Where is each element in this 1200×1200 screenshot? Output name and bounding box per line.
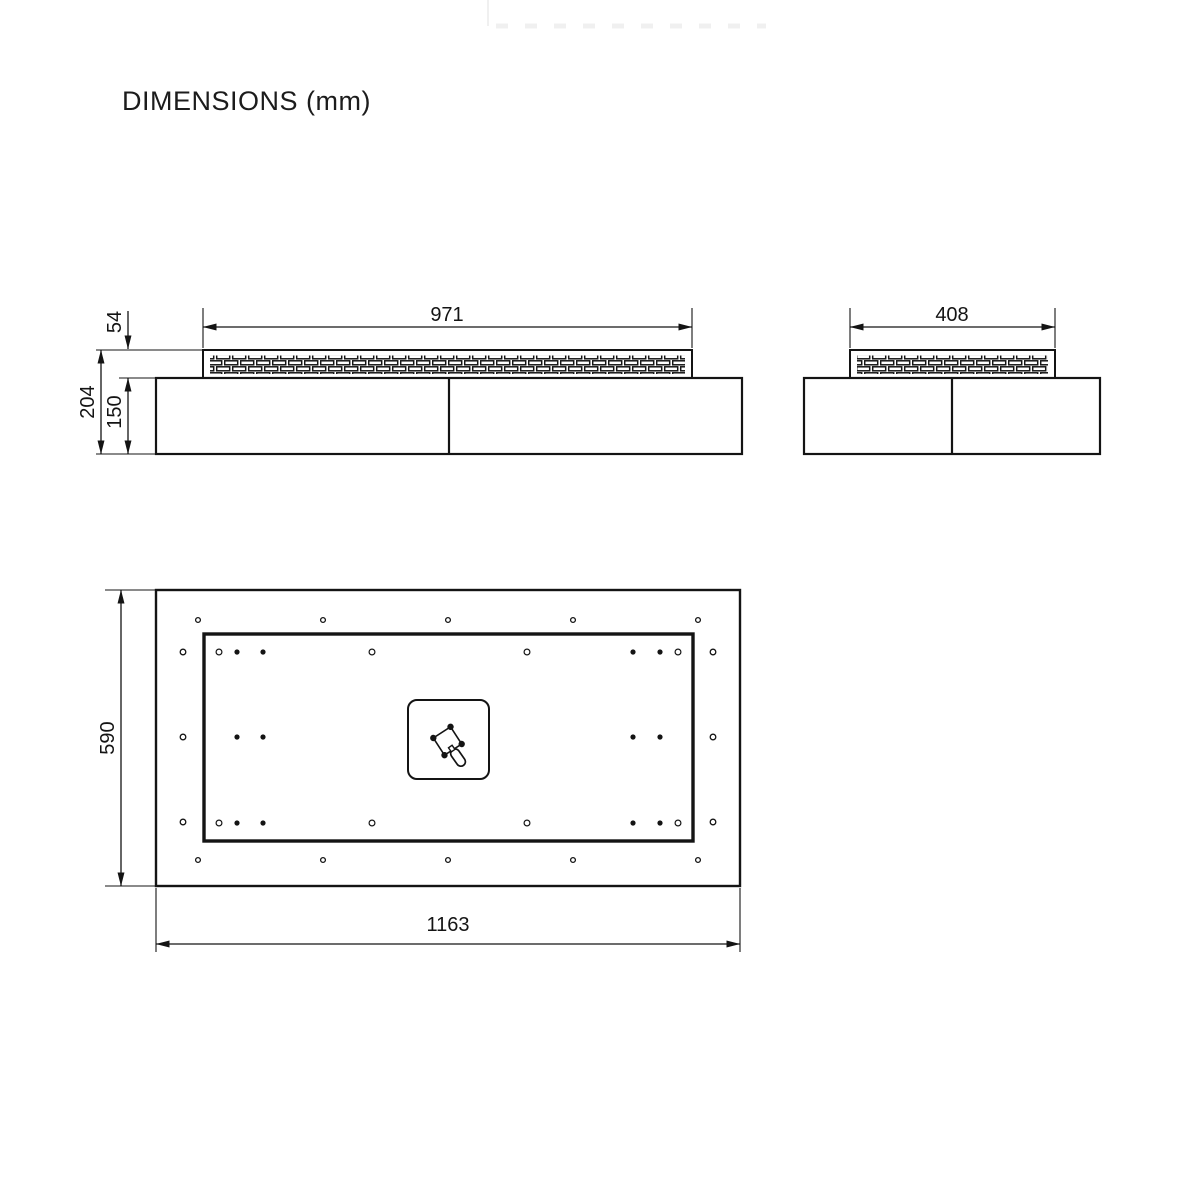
mounting-hole bbox=[710, 649, 716, 655]
dim-label-top-depth: 590 bbox=[97, 721, 119, 754]
dim-label-total-height: 204 bbox=[77, 385, 99, 418]
fastener-dot bbox=[260, 820, 265, 825]
dimension-drawing: 971 54 204 150 408 bbox=[0, 0, 1200, 1200]
mounting-hole bbox=[369, 649, 375, 655]
side-view: 408 bbox=[804, 304, 1100, 454]
mounting-hole bbox=[180, 649, 186, 655]
mounting-hole bbox=[196, 858, 201, 863]
fastener-dot bbox=[234, 734, 239, 739]
fastener-dot bbox=[630, 649, 635, 654]
fastener-dot bbox=[260, 649, 265, 654]
mounting-hole bbox=[571, 618, 576, 623]
mounting-hole bbox=[321, 618, 326, 623]
fastener-dot bbox=[657, 820, 662, 825]
dim-label-base-height: 150 bbox=[104, 395, 126, 428]
mounting-hole bbox=[321, 858, 326, 863]
dim-label-side-width: 408 bbox=[935, 304, 968, 326]
mounting-hole bbox=[675, 649, 681, 655]
mounting-hole bbox=[446, 618, 451, 623]
mounting-hole bbox=[216, 820, 222, 826]
fastener-dot bbox=[260, 734, 265, 739]
fastener-dot bbox=[630, 734, 635, 739]
side-burner-media-pattern bbox=[857, 356, 1048, 375]
dim-label-front-width: 971 bbox=[430, 304, 463, 326]
mounting-hole bbox=[216, 649, 222, 655]
fastener-dot bbox=[234, 649, 239, 654]
mounting-hole bbox=[675, 820, 681, 826]
fastener-dot bbox=[657, 649, 662, 654]
mounting-hole bbox=[571, 858, 576, 863]
mounting-hole bbox=[180, 819, 186, 825]
mounting-hole bbox=[524, 649, 530, 655]
mounting-hole bbox=[369, 820, 375, 826]
front-view: 971 54 204 150 bbox=[77, 304, 742, 454]
faint-watermark bbox=[488, 0, 766, 26]
dim-label-tray-height: 54 bbox=[104, 311, 126, 333]
mounting-hole bbox=[696, 858, 701, 863]
fastener-dot bbox=[234, 820, 239, 825]
mounting-hole bbox=[196, 618, 201, 623]
drawing-canvas: DIMENSIONS (mm) bbox=[0, 0, 1200, 1200]
mounting-hole bbox=[180, 734, 186, 740]
mounting-hole bbox=[710, 734, 716, 740]
mounting-hole bbox=[524, 820, 530, 826]
mounting-hole bbox=[446, 858, 451, 863]
center-access-panel bbox=[408, 700, 489, 779]
mounting-hole bbox=[696, 618, 701, 623]
fastener-dot bbox=[657, 734, 662, 739]
mounting-hole bbox=[710, 819, 716, 825]
top-view: 590 1163 bbox=[97, 590, 740, 952]
fastener-dot bbox=[630, 820, 635, 825]
front-burner-media-pattern bbox=[210, 356, 685, 375]
dim-label-top-width: 1163 bbox=[426, 914, 469, 936]
